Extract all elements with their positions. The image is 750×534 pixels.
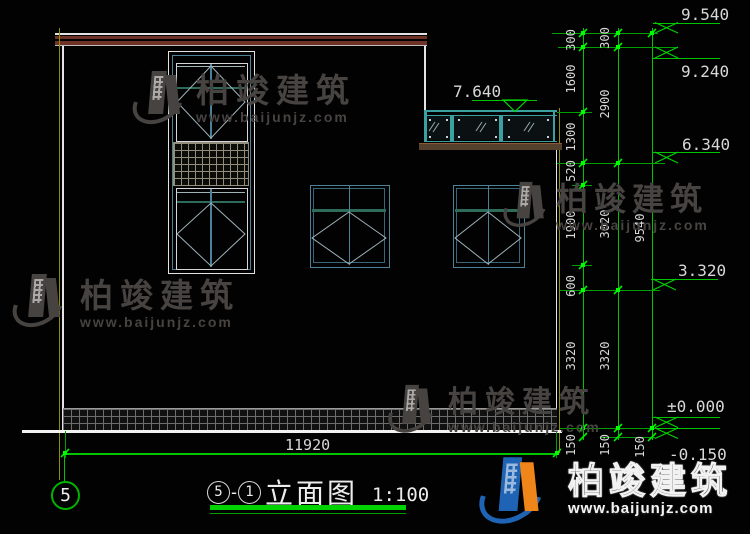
title-underline-thin <box>210 513 406 515</box>
title-axis-to-bubble: 1 <box>238 481 261 504</box>
dim-label-bottom: 11920 <box>285 436 330 454</box>
elevation-value: ±0.000 <box>667 397 725 416</box>
title-scale: 1:100 <box>372 484 429 506</box>
watermark-url-text: www.baijunjz.com <box>556 217 709 233</box>
elevation-value: 9.540 <box>681 5 729 24</box>
watermark-url-text: www.baijunjz.com <box>196 109 356 125</box>
dim-label: 300 <box>564 18 578 62</box>
grid-axis-bubble: 5 <box>51 481 80 510</box>
dim-label: 2900 <box>598 82 612 126</box>
brand-logo-icon <box>486 456 551 521</box>
brand-name-text: 柏竣建筑 <box>568 462 732 500</box>
title-axis-from-bubble: 5 <box>207 481 230 504</box>
brand-url-text: www.baijunjz.com <box>568 500 732 517</box>
brand-logo-icon <box>393 384 440 431</box>
dim-label: 3320 <box>598 334 612 378</box>
watermark-url-text: www.baijunjz.com <box>80 314 240 330</box>
dim-label: 300 <box>598 16 612 60</box>
watermark-brand-text: 柏竣建筑 <box>196 74 356 109</box>
watermark-brand-text: 柏竣建筑 <box>448 387 601 419</box>
elevation-value: 6.340 <box>682 135 730 154</box>
elevation-value: 9.240 <box>681 62 729 81</box>
dim-label: 600 <box>564 264 578 308</box>
title-underline-thick <box>210 505 406 510</box>
watermark-brand-text: 柏竣建筑 <box>80 279 240 314</box>
title-axis-separator: - <box>231 482 237 503</box>
dim-label: 1600 <box>564 57 578 101</box>
dim-label: 3320 <box>564 334 578 378</box>
elevation-value: 7.640 <box>453 82 501 101</box>
brand-logo-icon <box>138 70 190 122</box>
watermark-brand-text: 柏竣建筑 <box>556 183 709 217</box>
elevation-value: 3.320 <box>678 261 726 280</box>
watermark-url-text: www.baijunjz.com <box>448 419 601 435</box>
brand-logo-icon <box>18 273 70 325</box>
brand-logo-icon <box>508 181 552 225</box>
cad-elevation-drawing: 300 1600 1300 520 1900 600 3320 150 300 … <box>0 0 750 534</box>
grid-axis-number: 5 <box>60 485 71 506</box>
